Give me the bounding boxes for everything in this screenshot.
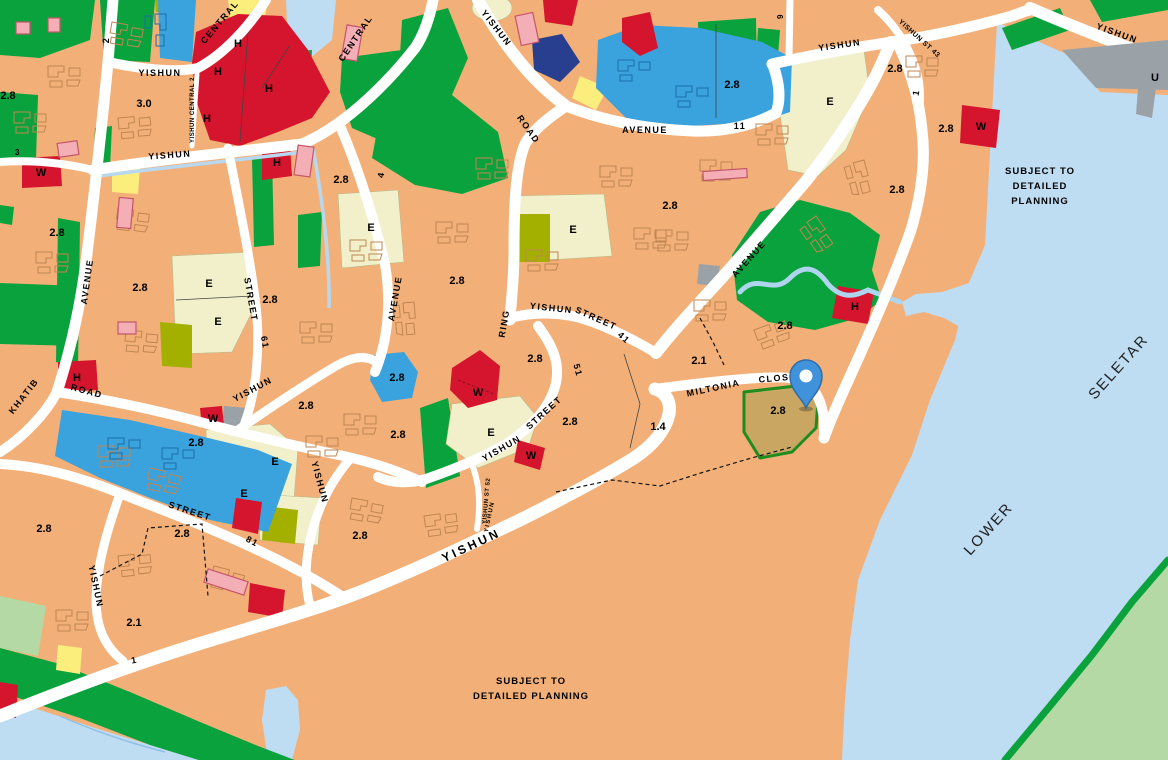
- zone-label: 2.8: [390, 429, 405, 441]
- zone-label: 2.8: [938, 123, 953, 135]
- zone-label: H: [203, 113, 211, 125]
- map-canvas[interactable]: 2CENTRALYISHUNYISHUN CENTRAL 2YISHUNCENT…: [0, 0, 1168, 760]
- zone-label: H: [234, 38, 242, 50]
- road-label: 9: [776, 13, 785, 19]
- zone-label: H: [214, 66, 222, 78]
- zone-label: 2.8: [889, 184, 904, 196]
- zone-label: 2.8: [449, 275, 464, 287]
- zone-label: 2.8: [662, 200, 677, 212]
- notice-label: SUBJECT TO: [496, 676, 566, 687]
- zone-label: 2.8: [333, 174, 348, 186]
- zone-label: 1.4: [650, 421, 666, 433]
- zone-label: 2.1: [691, 355, 706, 367]
- zone-label: E: [487, 427, 494, 439]
- zone-label: 2.8: [887, 63, 902, 75]
- zone-label: W: [976, 121, 987, 133]
- zone-label: E: [240, 488, 247, 500]
- zone-label: E: [271, 456, 278, 468]
- zone-label: 2.8: [389, 372, 404, 384]
- zone-label: 2.1: [126, 617, 141, 629]
- zone-label: 3.0: [136, 98, 151, 110]
- road-label: AVENUE: [622, 125, 668, 135]
- zone-label: 2.8: [0, 90, 15, 102]
- road-label: 3: [15, 148, 21, 157]
- zone-label: 2.8: [527, 353, 542, 365]
- zone-label: W: [36, 167, 47, 179]
- notice-label: SUBJECT TO: [1005, 166, 1075, 177]
- zone-label: 2.8: [132, 282, 147, 294]
- zone-label: W: [473, 387, 484, 399]
- zone-label: 2.8: [352, 530, 367, 542]
- zone-label: U: [1151, 72, 1159, 84]
- zone-label: 2.8: [36, 523, 51, 535]
- zone-label: W: [526, 450, 537, 462]
- zone-label: H: [273, 157, 281, 169]
- notice-label: PLANNING: [1011, 196, 1069, 207]
- zone-label: 2.8: [770, 405, 785, 417]
- road-label: YISHUN: [138, 68, 181, 78]
- zone-label: 2.8: [49, 227, 64, 239]
- zone-label: H: [73, 372, 81, 384]
- zone-label: H: [265, 83, 273, 95]
- notice-label: DETAILED: [1013, 181, 1068, 192]
- zone-label: E: [214, 316, 221, 328]
- road-label: 2: [101, 37, 111, 44]
- zone-label: 2.8: [777, 320, 792, 332]
- zone-label: E: [205, 278, 212, 290]
- zone-label: 2.8: [298, 400, 313, 412]
- zone-label: E: [569, 224, 576, 236]
- road-label: 11: [734, 121, 747, 131]
- zone-label: W: [208, 413, 219, 425]
- zone-label: 2.8: [188, 437, 203, 449]
- zone-label: 2.8: [724, 79, 739, 91]
- zone-label: E: [826, 96, 833, 108]
- zone-label: H: [851, 301, 859, 313]
- road-label: YISHUN CENTRAL 2: [190, 77, 196, 143]
- pond-bottom: [262, 686, 300, 760]
- zone-label: 2.8: [174, 528, 189, 540]
- zone-label: 2.8: [262, 294, 277, 306]
- notice-label: DETAILED PLANNING: [473, 691, 589, 702]
- zone-label: E: [367, 222, 374, 234]
- map-viewport: 2CENTRALYISHUNYISHUN CENTRAL 2YISHUNCENT…: [0, 0, 1168, 760]
- zone-label: 2.8: [562, 416, 577, 428]
